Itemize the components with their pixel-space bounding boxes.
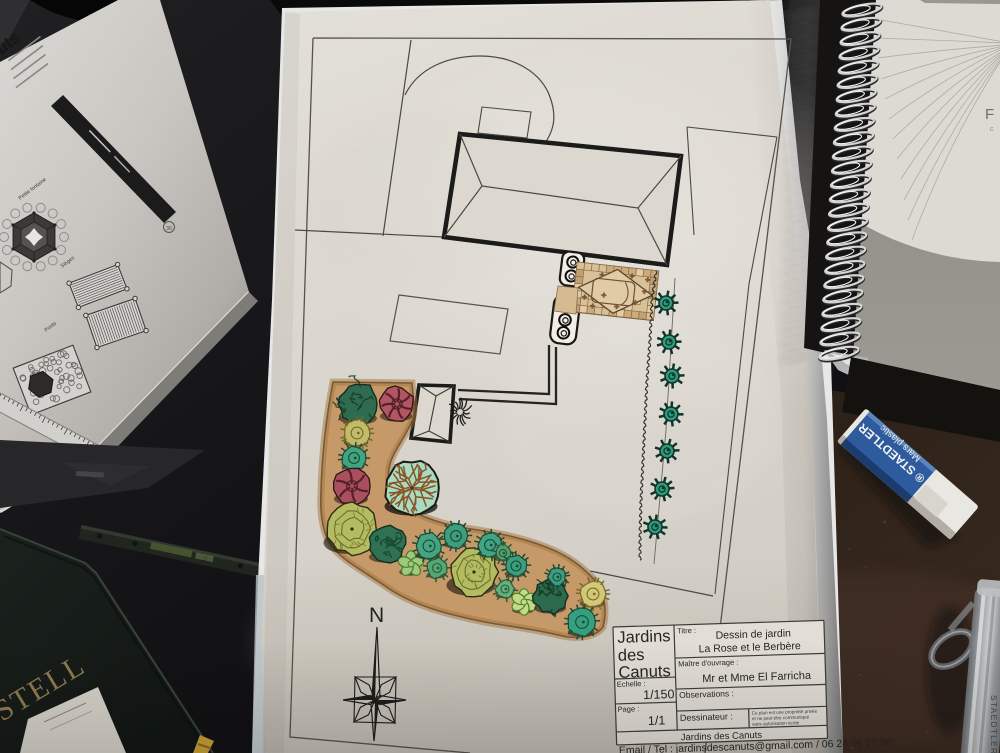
svg-text:N: N — [369, 604, 384, 627]
svg-text:Dessin de jardin: Dessin de jardin — [715, 627, 791, 641]
svg-text:F: F — [985, 106, 994, 123]
svg-text:c: c — [990, 126, 994, 133]
svg-text:36: 36 — [166, 226, 172, 232]
svg-text:Titre :: Titre : — [677, 626, 696, 636]
